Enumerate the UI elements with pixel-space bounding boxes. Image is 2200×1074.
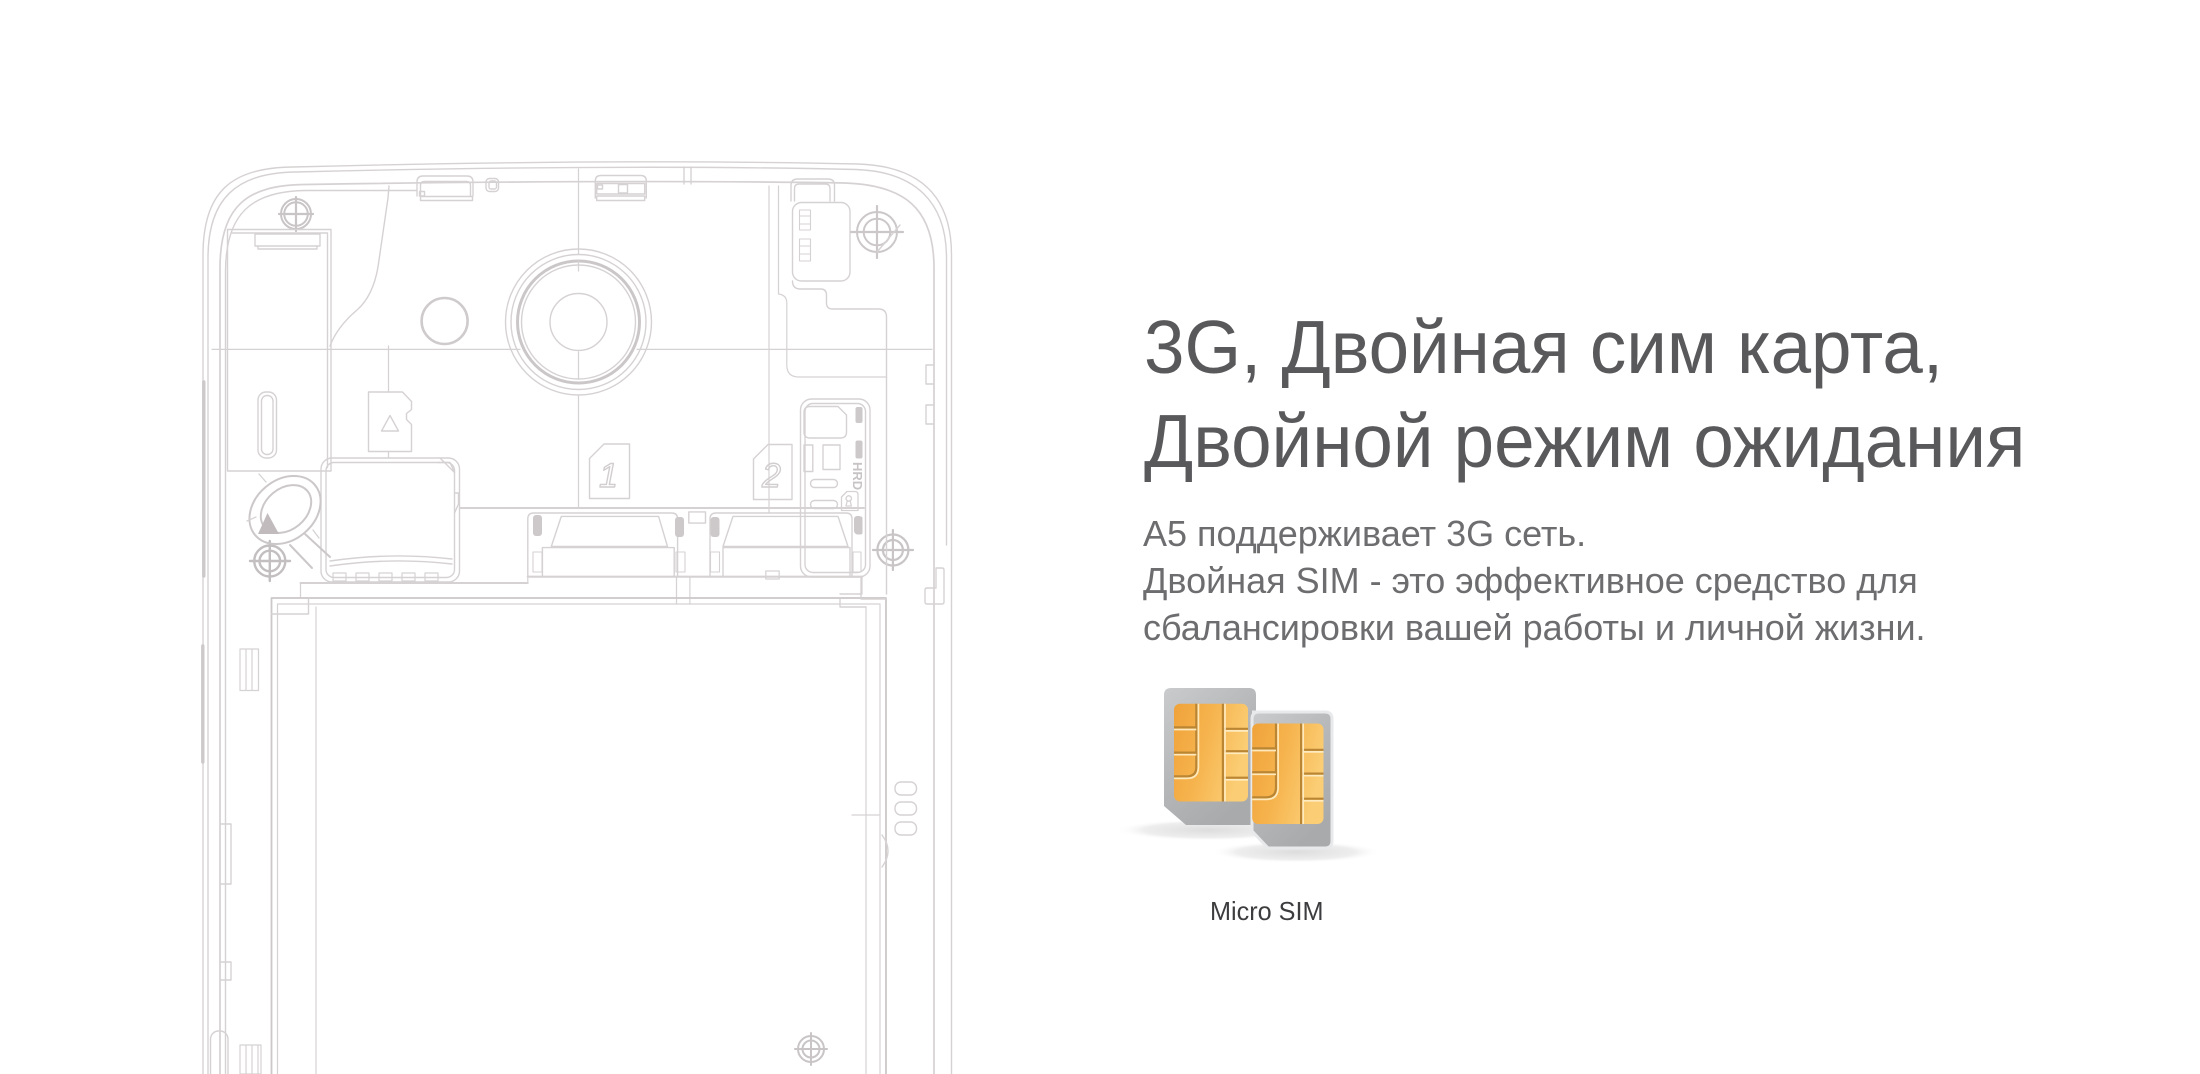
svg-text:HRD: HRD: [850, 462, 865, 490]
svg-text:1: 1: [599, 457, 618, 495]
svg-text:2: 2: [761, 457, 781, 495]
